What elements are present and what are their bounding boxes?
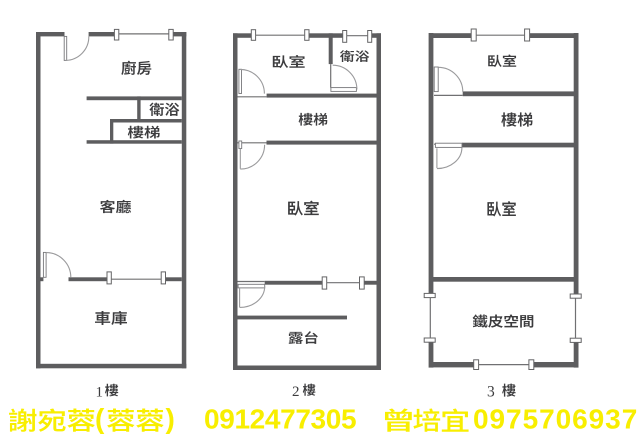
svg-text:0912477305: 0912477305: [204, 404, 356, 435]
svg-text:(: (: [95, 403, 105, 434]
svg-text:3: 3: [487, 384, 495, 401]
svg-text:): ): [166, 403, 175, 434]
svg-text:1: 1: [96, 384, 104, 400]
svg-text:2: 2: [292, 384, 300, 400]
svg-text:0975706937: 0975706937: [473, 404, 638, 435]
